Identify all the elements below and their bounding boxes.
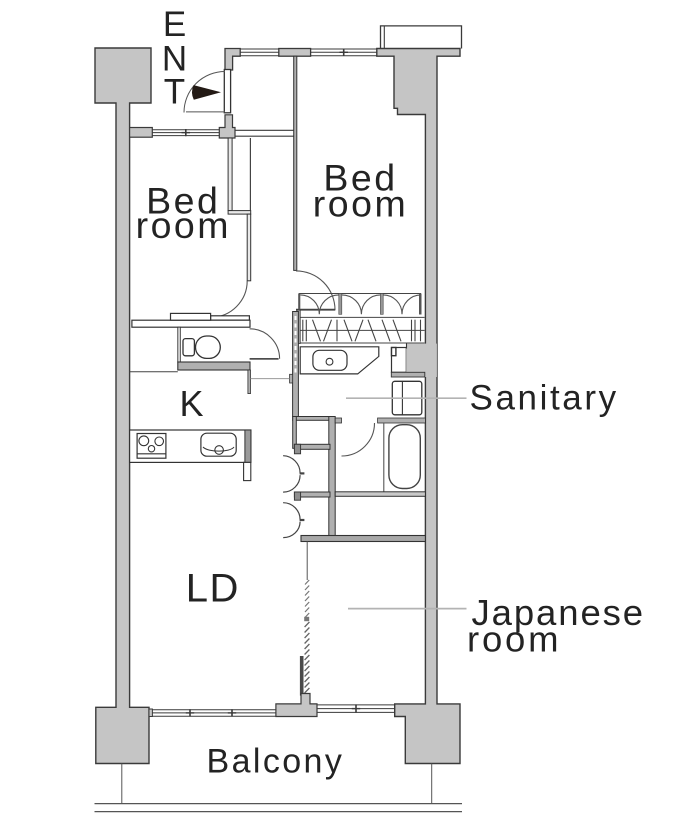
svg-text:Sanitary: Sanitary xyxy=(470,379,619,418)
svg-text:LD: LD xyxy=(186,567,240,611)
svg-text:Balcony: Balcony xyxy=(207,743,345,781)
svg-text:K: K xyxy=(180,383,204,424)
svg-text:T: T xyxy=(164,72,185,111)
svg-text:room: room xyxy=(467,619,561,660)
svg-text:room: room xyxy=(313,183,408,225)
svg-text:E: E xyxy=(163,5,186,44)
svg-text:room: room xyxy=(136,204,231,246)
